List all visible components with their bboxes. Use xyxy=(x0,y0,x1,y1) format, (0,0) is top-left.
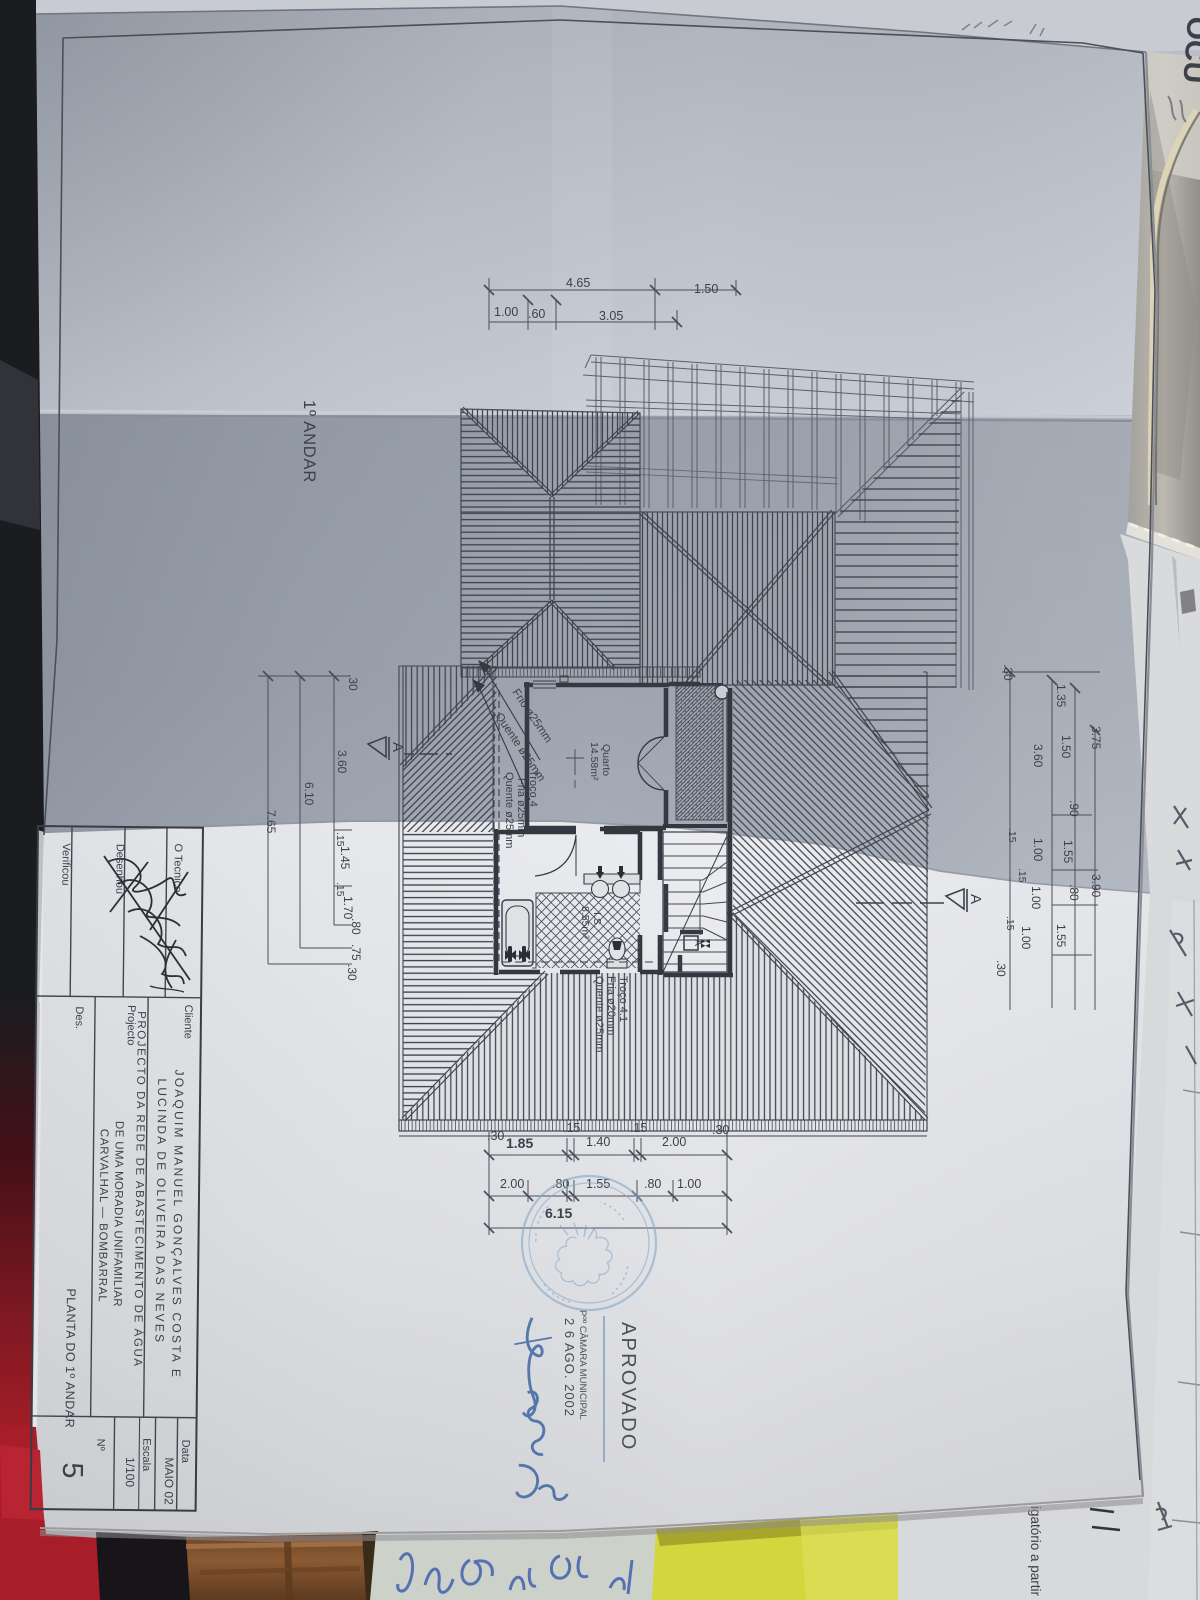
svg-text:Quarto: Quarto xyxy=(600,744,612,776)
svg-text:.30: .30 xyxy=(345,964,359,981)
svg-text:6.15: 6.15 xyxy=(545,1205,572,1221)
svg-text:7.65: 7.65 xyxy=(264,810,278,834)
svg-text:1.00: 1.00 xyxy=(1031,838,1045,862)
svg-text:2 6 AGO. 2002: 2 6 AGO. 2002 xyxy=(562,1318,577,1417)
svg-text:1.85: 1.85 xyxy=(506,1135,533,1151)
svg-text:Verificou: Verificou xyxy=(59,843,71,885)
svg-text:.15: .15 xyxy=(1006,828,1018,843)
svg-text:Nº: Nº xyxy=(94,1439,106,1451)
svg-text:LUCINDA DE OLIVEIRA DAS NEVES: LUCINDA DE OLIVEIRA DAS NEVES xyxy=(152,1078,169,1344)
svg-text:1.55: 1.55 xyxy=(1054,924,1068,948)
svg-text:Desenhou: Desenhou xyxy=(113,844,126,894)
svg-text:O Tecnico: O Tecnico xyxy=(171,843,184,892)
svg-text:1.35: 1.35 xyxy=(1054,684,1068,708)
svg-text:Escala: Escala xyxy=(140,1438,152,1472)
svg-text:A: A xyxy=(967,894,984,904)
svg-text:DE UMA MORADIA UNIFAMILIAR: DE UMA MORADIA UNIFAMILIAR xyxy=(111,1121,125,1307)
svg-text:4.65: 4.65 xyxy=(566,276,590,290)
svg-text:1.45: 1.45 xyxy=(338,846,352,870)
svg-text:igatório a partir: igatório a partir xyxy=(1028,1506,1043,1597)
svg-text:3.60: 3.60 xyxy=(335,750,349,774)
svg-text:Cliente: Cliente xyxy=(182,1005,194,1039)
svg-text:.60: .60 xyxy=(528,307,545,321)
svg-text:3.05: 3.05 xyxy=(599,309,623,323)
svg-text:.80: .80 xyxy=(349,918,363,935)
svg-text:1.50: 1.50 xyxy=(694,282,718,296)
svg-text:1.70: 1.70 xyxy=(341,896,355,920)
svg-text:.15: .15 xyxy=(334,832,346,847)
svg-text:1/100: 1/100 xyxy=(123,1457,137,1488)
svg-text:8.55m²: 8.55m² xyxy=(579,906,591,939)
svg-text:.15: .15 xyxy=(334,882,346,897)
svg-text:Fria ø25mm: Fria ø25mm xyxy=(515,778,527,837)
svg-text:.30: .30 xyxy=(346,674,360,691)
svg-text:Troço 4: Troço 4 xyxy=(527,770,539,807)
svg-text:1.00: 1.00 xyxy=(1029,886,1043,910)
svg-text:1.40: 1.40 xyxy=(586,1135,610,1149)
svg-text:I.S.: I.S. xyxy=(591,912,603,928)
svg-text:Quente ø25mm: Quente ø25mm xyxy=(503,772,515,848)
svg-text:.75: .75 xyxy=(349,944,363,961)
svg-text:1.00: 1.00 xyxy=(494,305,518,319)
svg-text:3.90: 3.90 xyxy=(1089,874,1103,898)
svg-text:.90: .90 xyxy=(1067,800,1081,817)
svg-text:1.00: 1.00 xyxy=(677,1177,701,1191)
svg-text:Pºº CÂMARA MUNICIPAL: Pºº CÂMARA MUNICIPAL xyxy=(577,1310,588,1420)
svg-text:2.00: 2.00 xyxy=(662,1135,686,1149)
svg-text:.80: .80 xyxy=(1067,884,1081,901)
svg-text:14.58m²: 14.58m² xyxy=(588,742,600,781)
svg-text:Des.: Des. xyxy=(73,1006,85,1029)
svg-text:CARVALHAL — BOMBARRAL: CARVALHAL — BOMBARRAL xyxy=(96,1129,110,1303)
svg-text:PLANTA DO 1º ANDAR: PLANTA DO 1º ANDAR xyxy=(62,1288,78,1428)
svg-text:APROVADO: APROVADO xyxy=(617,1322,639,1451)
svg-text:Quente ø25mm: Quente ø25mm xyxy=(593,976,605,1052)
svg-text:1.55: 1.55 xyxy=(1061,840,1075,864)
svg-text:.15: .15 xyxy=(1016,868,1028,883)
svg-text:.15: .15 xyxy=(1004,916,1016,931)
svg-text:2.00: 2.00 xyxy=(500,1177,524,1191)
svg-text:1.50: 1.50 xyxy=(1059,735,1073,759)
svg-text:.30: .30 xyxy=(994,960,1008,977)
svg-text:1º ANDAR: 1º ANDAR xyxy=(300,400,318,483)
svg-text:Fria ø20mm: Fria ø20mm xyxy=(605,976,617,1035)
svg-text:6.10: 6.10 xyxy=(302,782,316,806)
svg-text:Data: Data xyxy=(179,1440,191,1464)
svg-text:.80: .80 xyxy=(644,1177,661,1191)
svg-text:5: 5 xyxy=(56,1462,88,1478)
svg-text:.30: .30 xyxy=(1001,664,1015,681)
svg-text:MAIO 02: MAIO 02 xyxy=(162,1457,177,1505)
svg-text:1.00: 1.00 xyxy=(1019,926,1033,950)
svg-text:Troço 4.1: Troço 4.1 xyxy=(617,976,629,1022)
svg-text:3.75: 3.75 xyxy=(1089,726,1103,750)
svg-text:3.60: 3.60 xyxy=(1031,744,1045,768)
